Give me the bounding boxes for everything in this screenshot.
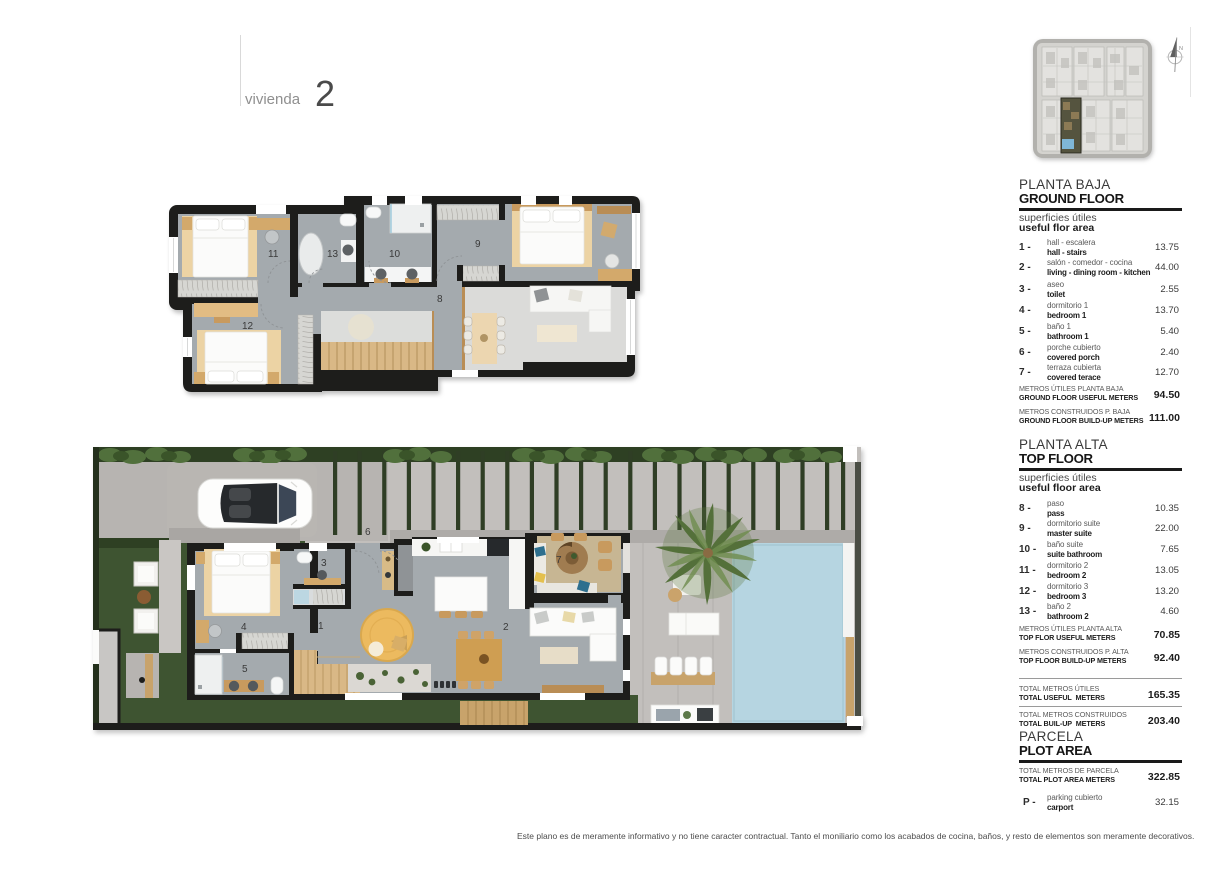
svg-text:N: N bbox=[1179, 46, 1183, 52]
svg-text:3: 3 bbox=[321, 558, 327, 569]
svg-text:6: 6 bbox=[365, 527, 371, 538]
svg-text:5: 5 bbox=[242, 664, 248, 675]
svg-text:7: 7 bbox=[556, 555, 562, 566]
svg-text:9: 9 bbox=[475, 239, 481, 250]
svg-text:1: 1 bbox=[318, 621, 324, 632]
svg-text:12: 12 bbox=[242, 321, 254, 332]
svg-text:8: 8 bbox=[437, 294, 443, 305]
svg-text:13: 13 bbox=[327, 249, 339, 260]
svg-text:2: 2 bbox=[503, 622, 509, 633]
svg-text:4: 4 bbox=[241, 622, 247, 633]
svg-text:10: 10 bbox=[389, 249, 401, 260]
svg-text:11: 11 bbox=[268, 249, 279, 260]
